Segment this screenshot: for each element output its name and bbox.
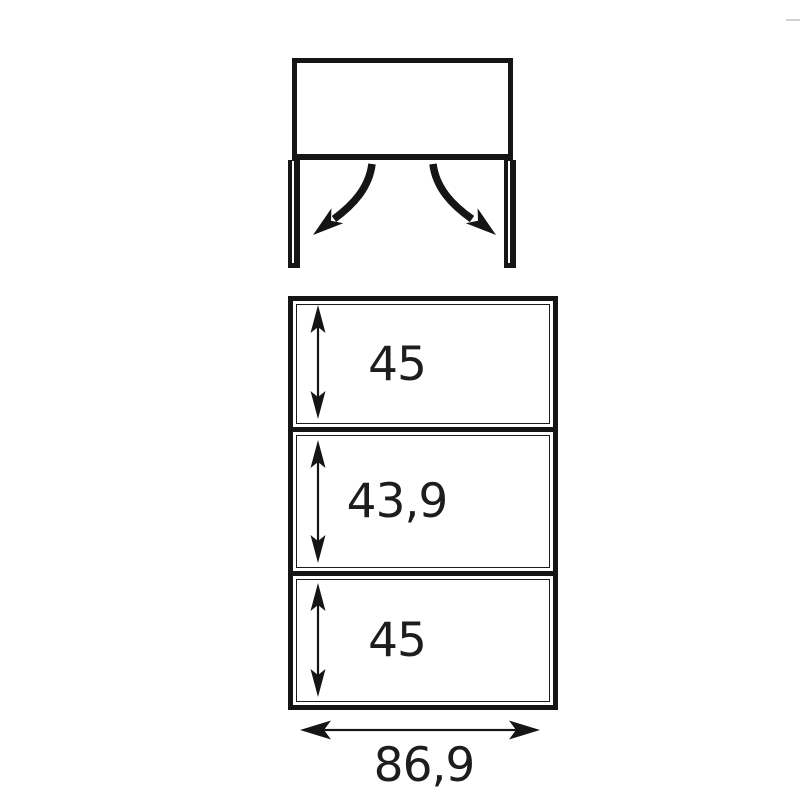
compartment-middle-height-label: 43,9 [335, 432, 459, 571]
compartment-top: 45 [293, 301, 553, 427]
vertical-dimension-arrow-icon [307, 583, 329, 697]
curved-arrow-down-right-icon [433, 164, 496, 235]
compartment-middle: 43,9 [293, 432, 553, 571]
compartment-top-height-label: 45 [335, 301, 459, 427]
flap-direction-arrows [292, 160, 513, 270]
curved-arrow-down-left-icon [313, 164, 372, 235]
top-view-cabinet-outline [292, 58, 513, 160]
scan-artifact-dash [786, 19, 800, 21]
overall-width-label: 86,9 [324, 737, 524, 793]
vertical-dimension-arrow-icon [307, 440, 329, 563]
diagram-canvas: 45 43,9 45 [0, 0, 800, 800]
front-view-cabinet-box: 45 43,9 45 [288, 296, 558, 710]
compartment-bottom: 45 [293, 576, 553, 705]
front-view-interior: 45 43,9 45 [293, 301, 553, 705]
compartment-bottom-height-label: 45 [335, 576, 459, 705]
vertical-dimension-arrow-icon [307, 305, 329, 419]
